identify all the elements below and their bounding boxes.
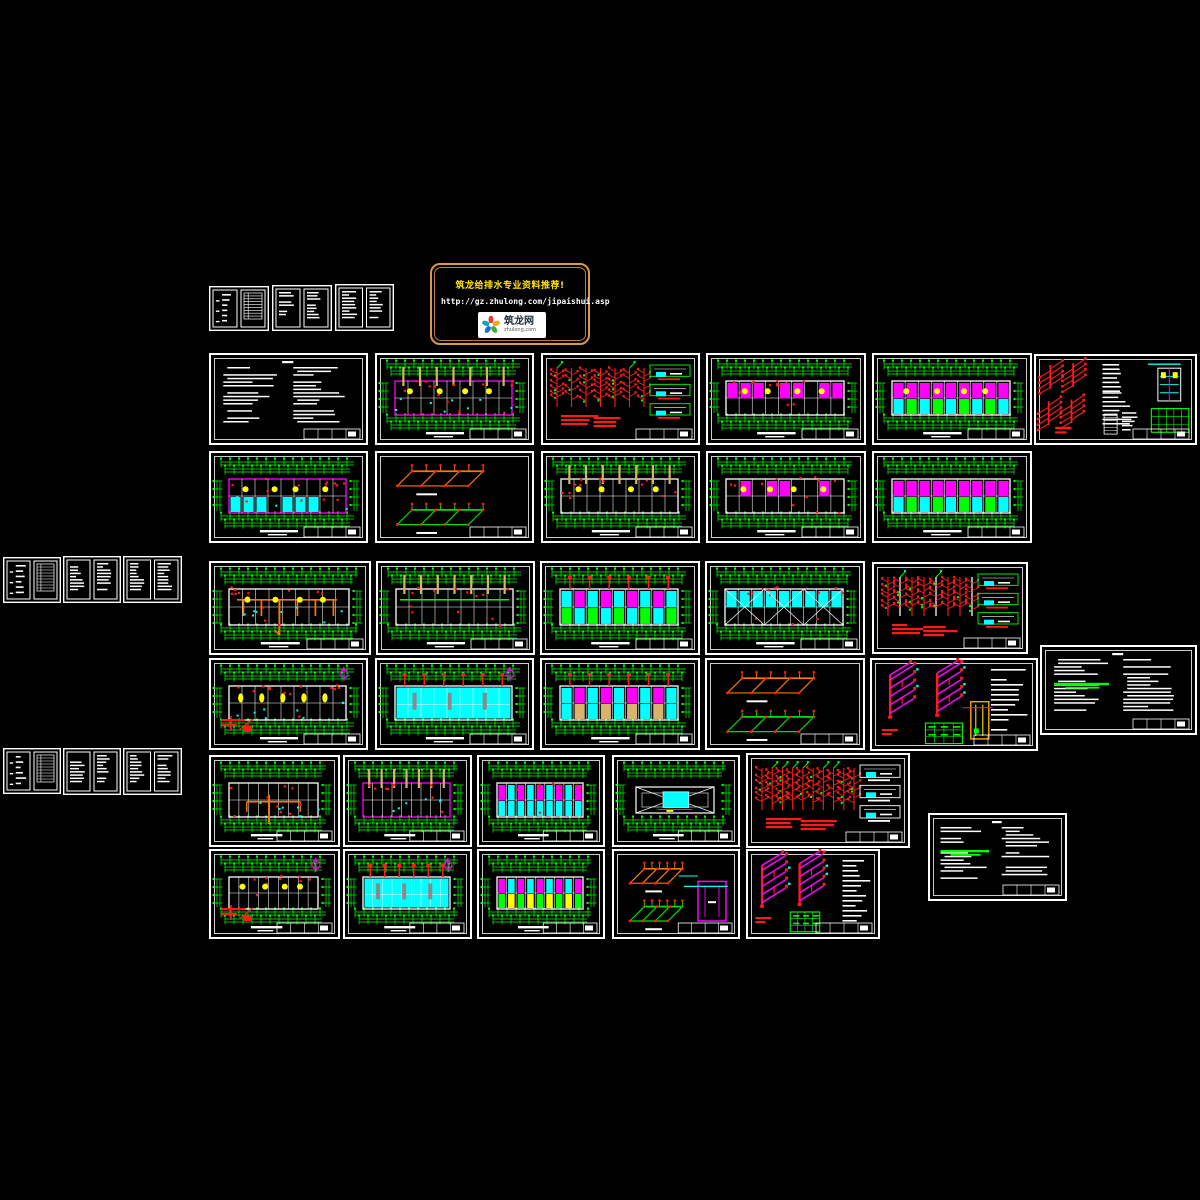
- zhulong-logo: 筑龙网 zhulong.com: [478, 312, 546, 338]
- logo-text-wrap: 筑龙网 zhulong.com: [504, 317, 536, 333]
- pinwheel-icon: [481, 315, 501, 335]
- drawing-sheet-s23: [209, 755, 340, 847]
- drawing-sheet-s11: [872, 451, 1032, 543]
- drawing-sheet-s19: [540, 658, 700, 750]
- drawing-sheet-s32: [746, 849, 880, 939]
- drawing-sheet-s3: [541, 353, 700, 445]
- drawing-sheet-a2: [272, 285, 332, 331]
- drawing-sheet-b3: [123, 556, 182, 603]
- drawing-sheet-s14: [540, 561, 700, 655]
- logo-subtext: zhulong.com: [504, 327, 536, 333]
- drawing-sheet-s8: [375, 451, 534, 543]
- drawing-sheet-s20: [705, 658, 865, 750]
- drawing-sheet-s29: [343, 849, 472, 939]
- drawing-sheet-s27: [746, 753, 910, 848]
- drawing-sheet-s2: [375, 353, 534, 445]
- drawing-sheet-s24: [343, 755, 472, 847]
- drawing-sheet-s31: [612, 849, 740, 939]
- drawing-sheet-c2: [63, 748, 121, 795]
- model-space-canvas: 筑龙给排水专业资料推荐! http://gz.zhulong.com/jipai…: [0, 0, 1200, 1200]
- drawing-sheet-s6: [1034, 354, 1197, 445]
- drawing-sheet-s28: [209, 849, 340, 939]
- drawing-sheet-s25: [477, 755, 605, 847]
- drawing-sheet-c3: [123, 748, 182, 795]
- drawing-sheet-s1: [209, 353, 368, 445]
- drawing-sheet-s10: [706, 451, 866, 543]
- drawing-sheet-a1: [209, 286, 269, 331]
- banner-title: 筑龙给排水专业资料推荐!: [432, 278, 588, 291]
- drawing-sheet-b2: [63, 556, 121, 603]
- drawing-sheet-b1: [3, 557, 61, 603]
- drawing-sheet-s30: [477, 849, 605, 939]
- drawing-sheet-s16: [872, 562, 1028, 654]
- drawing-sheet-s17: [209, 658, 368, 750]
- drawing-sheet-s4: [706, 353, 866, 445]
- drawing-sheet-s13: [376, 561, 535, 655]
- drawing-sheet-s12: [209, 561, 371, 655]
- drawing-sheet-a3: [335, 284, 394, 331]
- banner-url: http://gz.zhulong.com/jipaishui.asp: [441, 297, 610, 306]
- drawing-sheet-c1: [3, 748, 61, 794]
- drawing-sheet-s5: [872, 353, 1032, 445]
- drawing-sheet-s26: [612, 755, 740, 847]
- drawing-sheet-s9: [541, 451, 700, 543]
- drawing-sheet-s22: [1040, 645, 1197, 735]
- promo-banner: 筑龙给排水专业资料推荐! http://gz.zhulong.com/jipai…: [430, 263, 590, 345]
- drawing-sheet-s7: [209, 451, 368, 543]
- drawing-sheet-s21: [870, 658, 1038, 751]
- logo-text: 筑龙网: [504, 317, 536, 327]
- drawing-sheet-s18: [375, 658, 534, 750]
- drawing-sheet-s15: [705, 561, 865, 655]
- drawing-sheet-s33: [928, 813, 1067, 901]
